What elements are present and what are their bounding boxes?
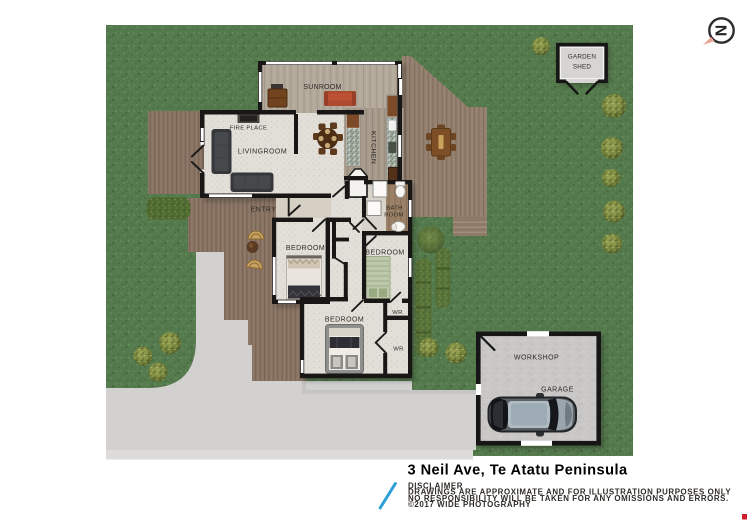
svg-text:BEDROOM: BEDROOM [325,317,364,324]
svg-text:BEDROOM: BEDROOM [365,250,404,257]
svg-text:ROOM: ROOM [384,213,404,219]
svg-text:3 Neil Ave, Te Atatu Peninsula: 3 Neil Ave, Te Atatu Peninsula [408,463,628,479]
svg-text:©2017 WIDE PHOTOGRAPHY: ©2017 WIDE PHOTOGRAPHY [408,500,531,509]
svg-text:LIVINGROOM: LIVINGROOM [238,149,287,156]
svg-text:BATH: BATH [386,206,402,212]
svg-text:FIRE PLACE: FIRE PLACE [230,126,267,132]
svg-text:KITCHEN: KITCHEN [370,131,377,164]
svg-text:SUNROOM: SUNROOM [303,84,341,91]
svg-text:SHED: SHED [573,64,592,71]
svg-text:N: N [712,25,729,37]
svg-text:BEDROOM: BEDROOM [286,245,325,252]
svg-text:WR: WR [392,310,402,316]
svg-text:WORKSHOP: WORKSHOP [514,355,559,362]
svg-text:ENTRY: ENTRY [251,207,277,214]
svg-text:GARAGE: GARAGE [541,387,574,394]
svg-text:WR: WR [393,347,403,353]
svg-text:GARDEN: GARDEN [568,54,596,61]
